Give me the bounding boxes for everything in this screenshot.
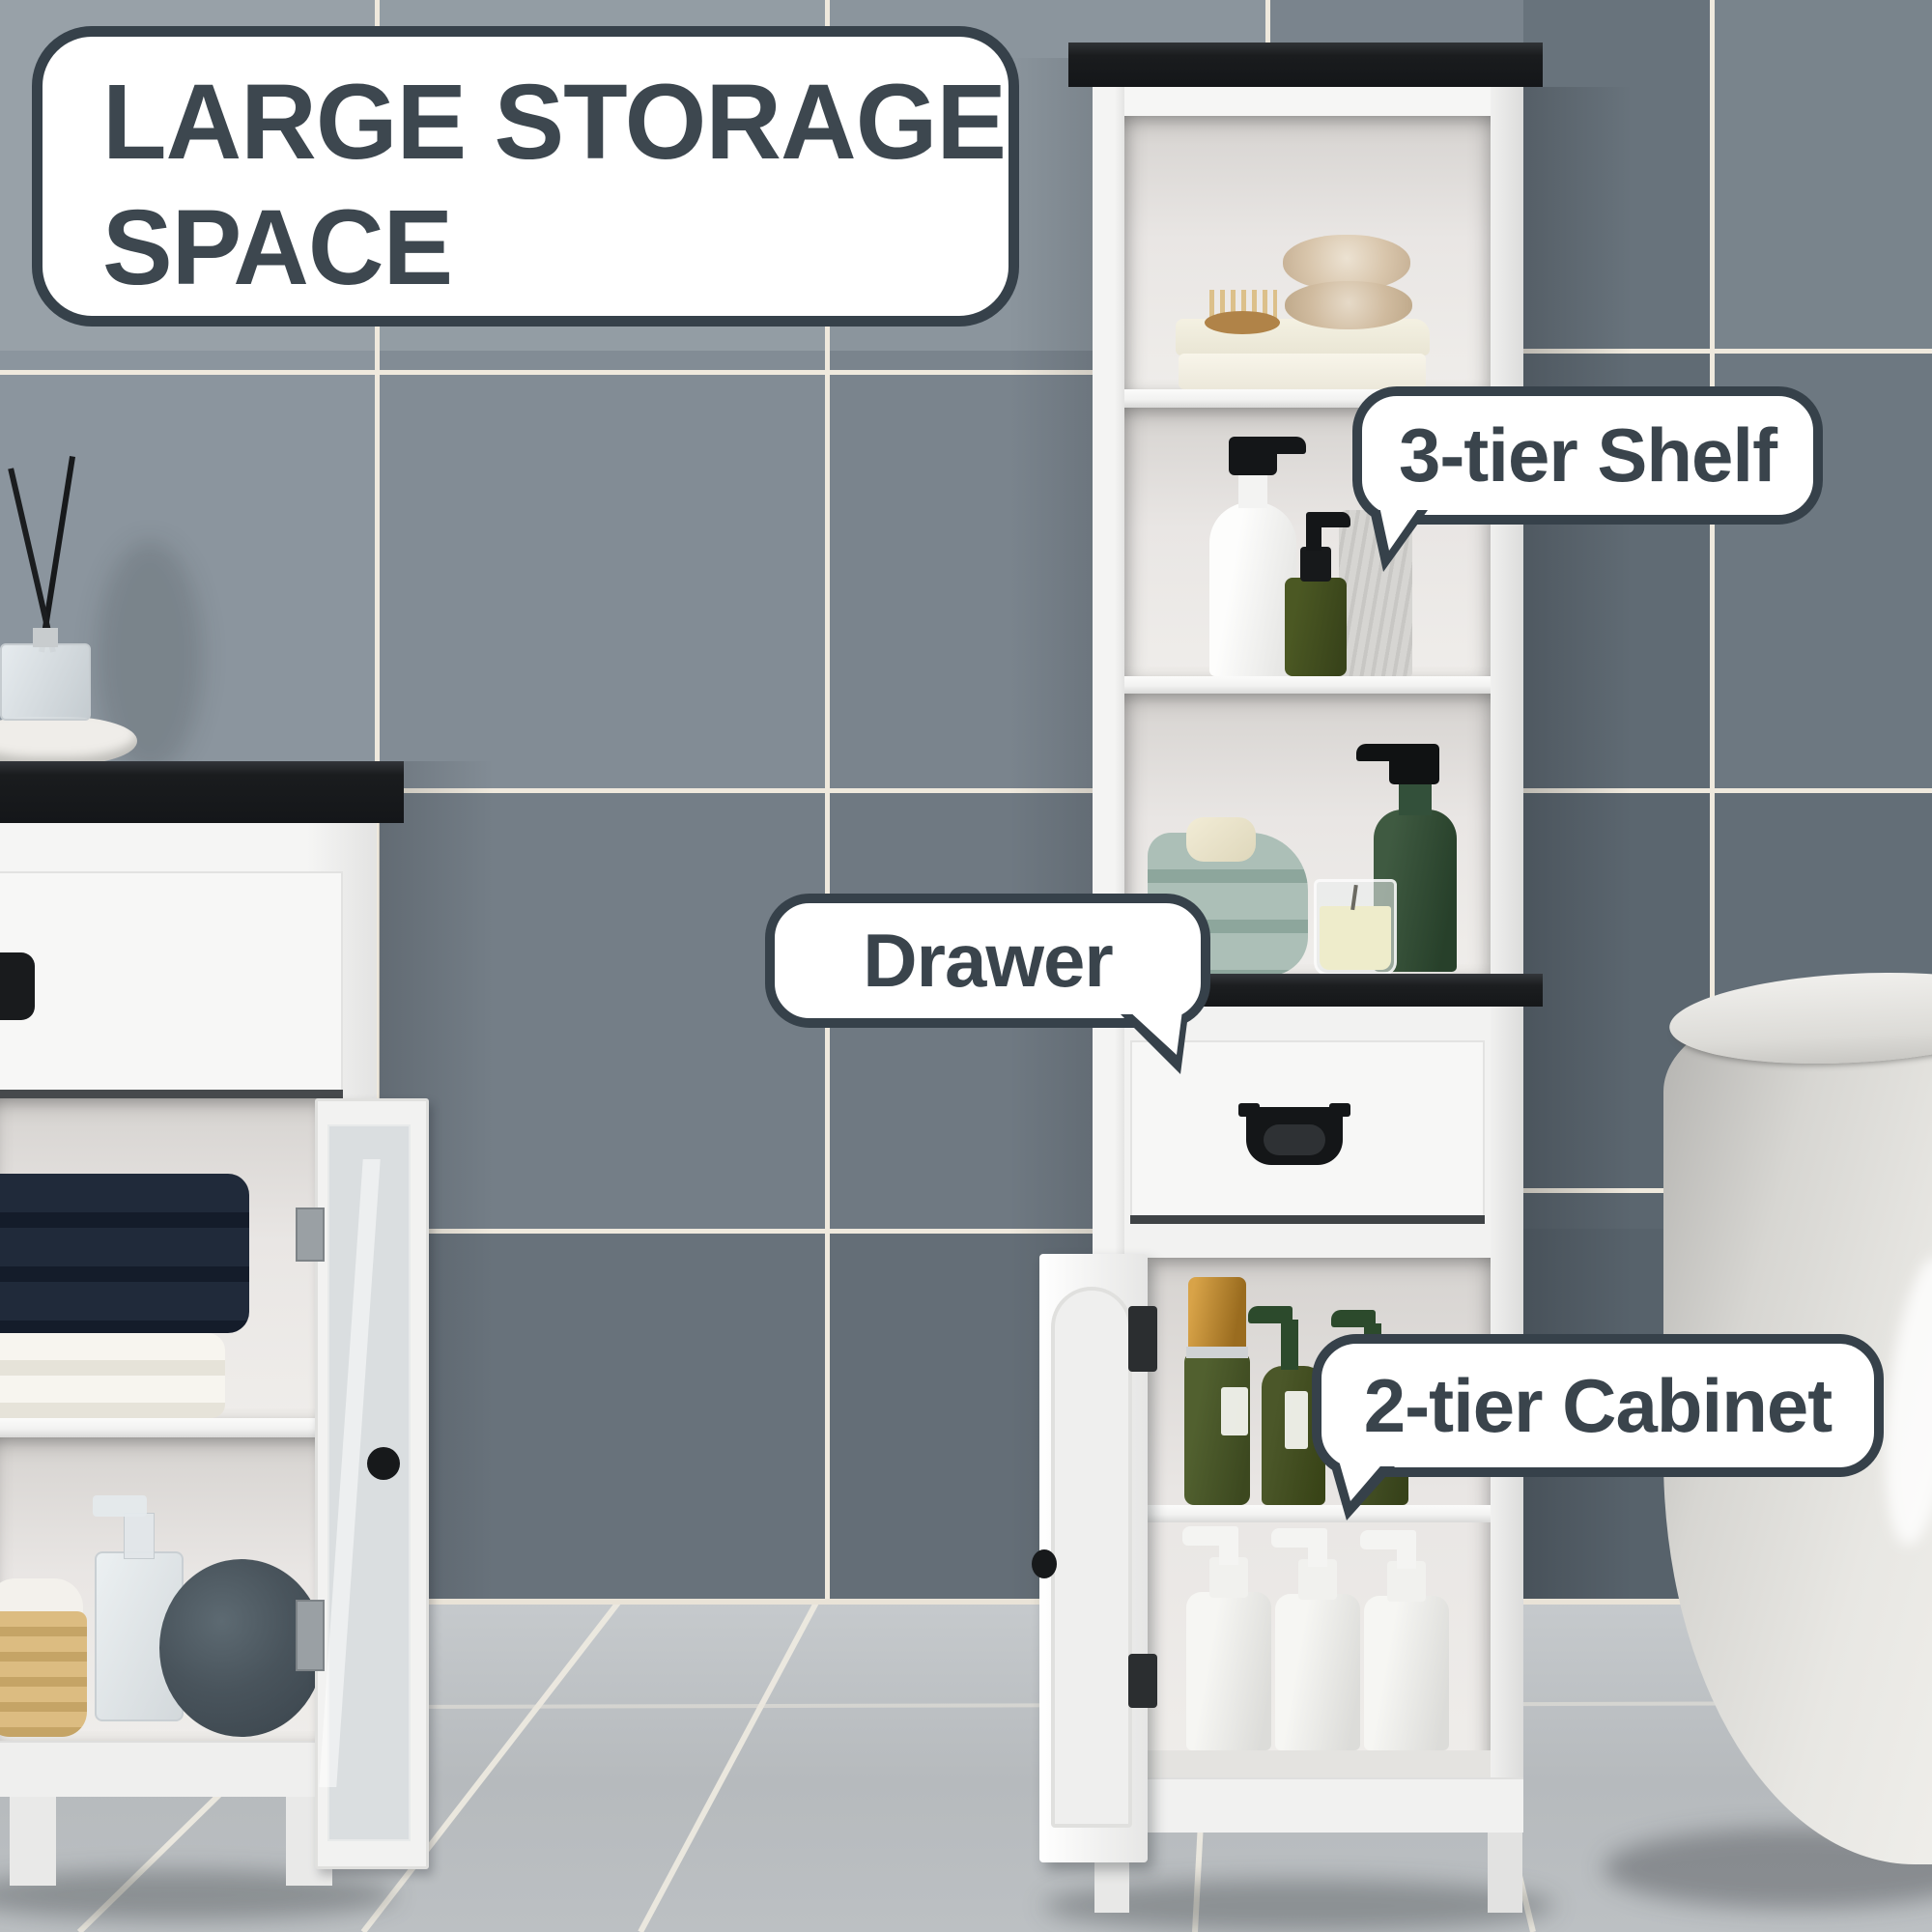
vanity-door-hinge bbox=[296, 1600, 325, 1671]
vanity-base-rail bbox=[0, 1741, 340, 1797]
pump-spout-black bbox=[1306, 512, 1350, 527]
callout-drawer-label: Drawer bbox=[863, 917, 1112, 1005]
pump-spout-black bbox=[1264, 437, 1306, 454]
bathroom-product-scene: LARGE STORAGE SPACE 3-tier Shelf Drawer … bbox=[0, 0, 1932, 1932]
drawer-handle-wing bbox=[1238, 1103, 1260, 1117]
title-box: LARGE STORAGE SPACE bbox=[32, 26, 1019, 327]
cabinet-door-hinge bbox=[1128, 1654, 1157, 1708]
callout-shelf-tail-fill bbox=[1379, 506, 1420, 551]
grout-line bbox=[0, 370, 1093, 375]
drawer-handle bbox=[1246, 1107, 1343, 1165]
bath-sponge bbox=[1285, 281, 1412, 329]
title-line-2: SPACE bbox=[102, 185, 1006, 311]
pump-spout-white bbox=[1360, 1530, 1416, 1549]
white-towels bbox=[0, 1333, 225, 1418]
cabinet-door-hinge bbox=[1128, 1306, 1157, 1372]
callout-cabinet: 2-tier Cabinet bbox=[1312, 1334, 1884, 1477]
vanity-door-hinge bbox=[296, 1207, 325, 1262]
diffuser-glass-cube bbox=[0, 643, 91, 721]
bottle-label bbox=[1221, 1387, 1248, 1435]
vanity-shelf-board bbox=[0, 1418, 340, 1437]
shelf-board bbox=[1124, 676, 1491, 694]
green-square-bottle bbox=[1285, 578, 1347, 676]
pump-spout-white bbox=[1182, 1526, 1238, 1546]
callout-drawer-tail-fill bbox=[1128, 1010, 1182, 1055]
callout-shelf: 3-tier Shelf bbox=[1352, 386, 1823, 525]
bottle-label bbox=[1285, 1391, 1308, 1449]
diffuser-neck bbox=[33, 628, 58, 647]
vanity-door bbox=[315, 1098, 429, 1869]
wall-tile bbox=[377, 351, 827, 789]
soap-dispenser-pump bbox=[124, 1513, 155, 1559]
soap-bar bbox=[1186, 817, 1256, 862]
candle-wax bbox=[1320, 906, 1391, 970]
white-pump-bottle bbox=[1186, 1592, 1271, 1750]
cabinet-door-knob bbox=[1032, 1549, 1057, 1578]
green-bottle-cap bbox=[1300, 547, 1331, 582]
pump-spout-green bbox=[1248, 1306, 1293, 1323]
white-pump-bottle bbox=[1364, 1596, 1449, 1750]
folded-towel-cream bbox=[1179, 354, 1426, 389]
soap-dispenser-spout bbox=[93, 1495, 147, 1517]
cabinet-right-stile bbox=[1491, 87, 1523, 1777]
title-line-1: LARGE STORAGE bbox=[102, 60, 1006, 185]
gold-cap bbox=[1188, 1277, 1246, 1354]
diffuser-tray bbox=[0, 717, 137, 765]
pump-stem-green bbox=[1281, 1320, 1298, 1370]
page-title: LARGE STORAGE SPACE bbox=[102, 60, 1006, 311]
vanity-leg bbox=[10, 1795, 56, 1886]
vanity-countertop bbox=[0, 761, 404, 823]
cabinet-top-rail bbox=[1093, 87, 1523, 116]
wicker-basket bbox=[0, 1611, 87, 1737]
callout-cabinet-tail-fill bbox=[1339, 1461, 1385, 1501]
vanity-drawer bbox=[0, 871, 343, 1094]
vanity-drawer-handle bbox=[0, 952, 35, 1020]
cabinet-inner-floor bbox=[1124, 1750, 1491, 1777]
white-pump-bottle bbox=[1209, 502, 1296, 676]
silver-ring bbox=[1186, 1347, 1248, 1358]
callout-drawer: Drawer bbox=[765, 894, 1210, 1028]
drawer-gap-line bbox=[1130, 1215, 1485, 1224]
wooden-brush bbox=[1205, 311, 1280, 334]
cabinet-door-panel bbox=[1051, 1287, 1132, 1828]
vanity-door-knob bbox=[367, 1447, 400, 1480]
vanity-drawer-gap bbox=[0, 1090, 343, 1098]
cabinet-middle-shelf bbox=[1124, 1505, 1491, 1522]
drawer-handle-recess bbox=[1264, 1124, 1325, 1155]
cabinet-base-rail bbox=[1093, 1777, 1523, 1833]
pump-spout-green bbox=[1331, 1310, 1376, 1327]
pump-spout-black bbox=[1356, 744, 1399, 761]
cabinet-top-black bbox=[1068, 43, 1543, 87]
pump-spout-white bbox=[1271, 1528, 1327, 1548]
white-bottle-neck bbox=[1238, 469, 1267, 508]
callout-shelf-label: 3-tier Shelf bbox=[1399, 412, 1776, 499]
wall-tile bbox=[1712, 0, 1932, 351]
cabinet-leg bbox=[1488, 1831, 1522, 1913]
callout-cabinet-label: 2-tier Cabinet bbox=[1364, 1362, 1832, 1450]
white-pump-bottle bbox=[1275, 1594, 1360, 1750]
drawer-handle-wing bbox=[1329, 1103, 1350, 1117]
navy-towels bbox=[0, 1174, 249, 1333]
